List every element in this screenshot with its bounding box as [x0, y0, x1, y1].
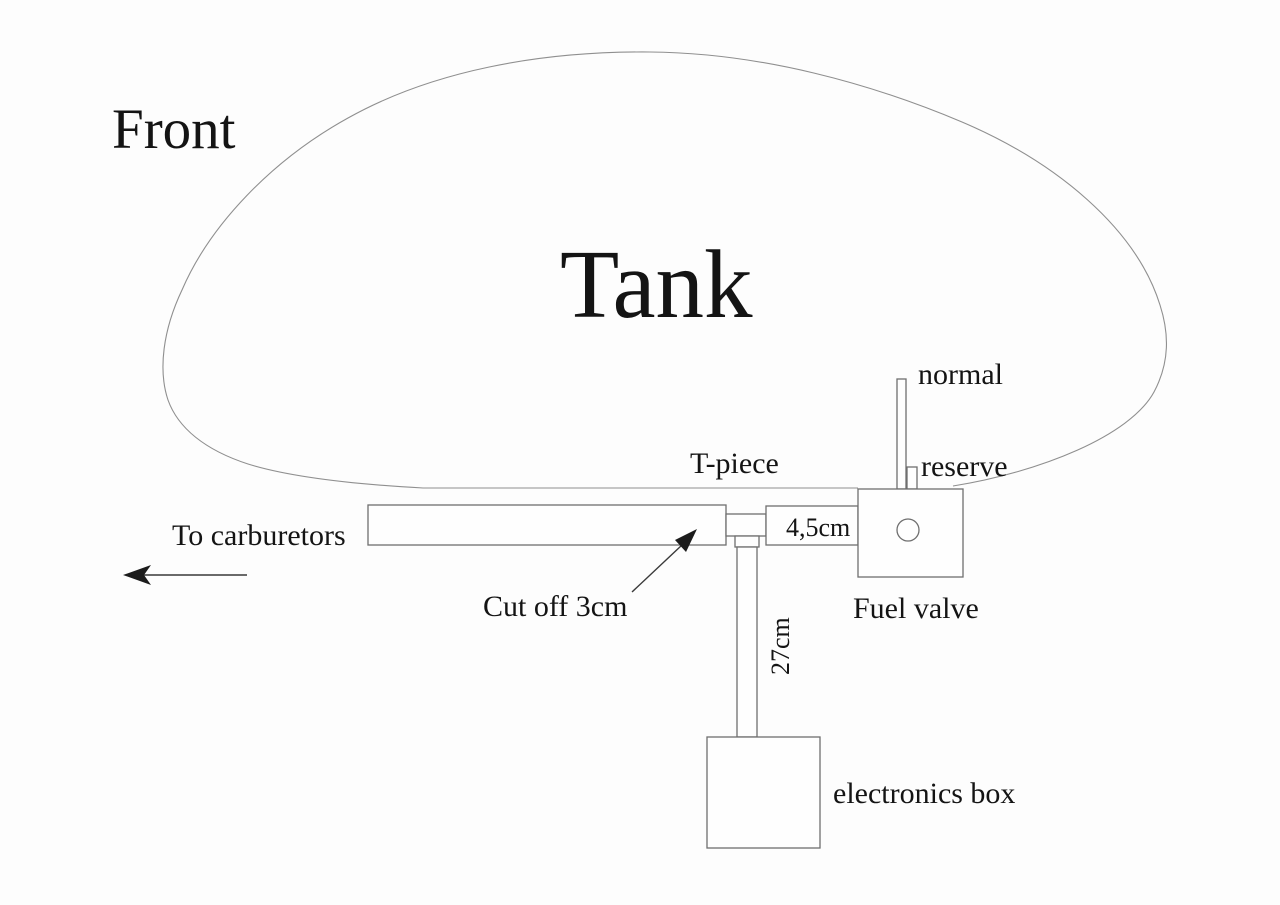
fuel-valve-label: Fuel valve: [853, 592, 979, 625]
diagram-canvas: Front Tank normal reserve T-piece To car…: [0, 0, 1280, 905]
normal-label: normal: [918, 358, 1003, 391]
carburetor-pipe: [368, 505, 726, 545]
tank-label: Tank: [560, 231, 753, 338]
fuel-valve-body: [858, 489, 963, 577]
t-piece-connector: [726, 514, 766, 536]
hose-length-label: 4,5cm: [786, 513, 850, 542]
t-piece-stub: [735, 536, 759, 547]
fuel-system-diagram: Front Tank normal reserve T-piece To car…: [0, 0, 1280, 905]
vertical-pipe-27cm: [737, 547, 757, 737]
front-label: Front: [112, 98, 236, 161]
electronics-box-label: electronics box: [833, 777, 1015, 810]
drop-length-label: 27cm: [766, 617, 795, 675]
t-piece-label: T-piece: [690, 447, 779, 480]
to-carburetors-label: To carburetors: [172, 519, 346, 552]
electronics-box-shape: [707, 737, 820, 848]
cut-off-label: Cut off 3cm: [483, 590, 627, 623]
reserve-pipe: [907, 467, 917, 489]
normal-pipe: [897, 379, 906, 489]
cut-off-arrow-line: [632, 545, 682, 592]
reserve-label: reserve: [921, 450, 1008, 483]
